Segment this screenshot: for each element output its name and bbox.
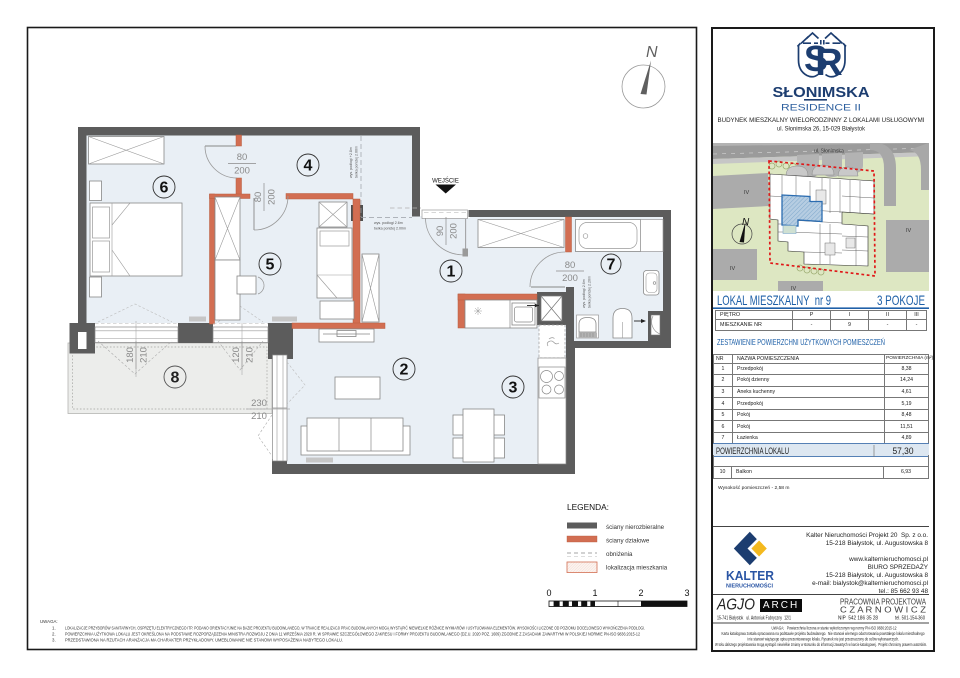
svg-text:200: 200 (234, 166, 250, 177)
svg-text:1: 1 (592, 588, 597, 598)
svg-text:IV: IV (730, 266, 736, 272)
svg-text:belka poniżej 2.00m: belka poniżej 2.00m (374, 227, 406, 231)
svg-text:1.: 1. (52, 626, 56, 631)
svg-text:15-741 Białystok ul. Antoniu: 15-741 Białystok ul. Antoniuk Fabryczny … (717, 616, 791, 622)
svg-text:IV: IV (744, 190, 750, 196)
svg-text:80: 80 (237, 152, 248, 163)
svg-text:obniżenia: obniżenia (606, 551, 633, 558)
svg-text:wys. podłogi 2.6m: wys. podłogi 2.6m (582, 279, 586, 308)
svg-text:6: 6 (160, 180, 169, 197)
svg-text:7: 7 (607, 257, 616, 274)
svg-text:2: 2 (638, 588, 643, 598)
svg-text:3: 3 (684, 588, 689, 598)
svg-text:WEJŚCIE: WEJŚCIE (432, 177, 459, 185)
svg-text:wys. podłogi 2.6m: wys. podłogi 2.6m (374, 221, 403, 225)
svg-text:3: 3 (509, 380, 518, 397)
svg-text:SŁONIMSKA: SŁONIMSKA (773, 84, 870, 101)
svg-text:IV: IV (906, 228, 912, 234)
svg-text:i nie stanowi wiążącego opisu: i nie stanowi wiążącego opisu prezentowa… (747, 637, 899, 642)
svg-text:2.: 2. (52, 632, 56, 637)
svg-text:wys. podłogi +2.8m: wys. podłogi +2.8m (349, 147, 353, 178)
svg-text:200: 200 (449, 223, 460, 239)
svg-text:LEGENDA:: LEGENDA: (567, 502, 609, 512)
svg-text:C Z A R N O W I C Z: C Z A R N O W I C Z (840, 606, 926, 615)
svg-text:4: 4 (304, 158, 313, 175)
svg-text:N: N (742, 217, 750, 228)
svg-text:200: 200 (562, 273, 578, 284)
svg-text:210: 210 (251, 411, 267, 422)
svg-text:N: N (646, 44, 658, 61)
svg-text:0: 0 (546, 588, 551, 598)
svg-text:POWIERZCHNIA LOKALU: POWIERZCHNIA LOKALU (716, 446, 789, 457)
svg-text:W toku dalszego projektowania: W toku dalszego projektowania mogą wystą… (715, 642, 927, 647)
svg-text:Karta katalogowa została oprac: Karta katalogowa została opracowana na p… (722, 631, 925, 636)
svg-text:ściany nierozbieralne: ściany nierozbieralne (606, 524, 665, 531)
svg-text:PRZEDSTAWIONA NA RZUTACH ARANŻ: PRZEDSTAWIONA NA RZUTACH ARANŻACJA MA CH… (65, 638, 343, 643)
svg-text:80: 80 (565, 260, 576, 271)
svg-text:belka poniżej 2.20m: belka poniżej 2.20m (588, 276, 592, 308)
svg-text:ściany działowe: ściany działowe (606, 538, 650, 545)
svg-text:5: 5 (266, 257, 275, 274)
svg-text:1: 1 (447, 264, 456, 281)
svg-text:KALTER: KALTER (726, 568, 775, 583)
svg-text:ZESTAWIENIE POWIERZCHNI UŻYTKO: ZESTAWIENIE POWIERZCHNI UŻYTKOWYCH POMIE… (717, 337, 885, 347)
svg-text:lokalizacja mieszkania: lokalizacja mieszkania (606, 565, 668, 572)
svg-text:57,30: 57,30 (893, 446, 914, 457)
svg-text:120: 120 (231, 347, 242, 363)
svg-text:BUDYNEK MIESZKALNY WIELORODZIN: BUDYNEK MIESZKALNY WIELORODZINNY Z LOKAL… (718, 117, 925, 124)
svg-text:NIP 542 186 35 28: NIP 542 186 35 28 (838, 616, 878, 622)
svg-text:200: 200 (267, 189, 278, 205)
svg-text:LOKAL MIESZKALNY nr 9: LOKAL MIESZKALNY nr 9 (717, 293, 831, 308)
svg-text:NIERUCHOMOŚCI: NIERUCHOMOŚCI (726, 583, 773, 590)
svg-text:210: 210 (245, 347, 256, 363)
svg-text:POWIERZCHNIA UŻYTKOWA LOKALU J: POWIERZCHNIA UŻYTKOWA LOKALU JEST OKREŚL… (65, 632, 640, 637)
svg-text:3.: 3. (52, 638, 56, 643)
svg-text:ul. Słonimska 26, 15-029 Biały: ul. Słonimska 26, 15-029 Białystok (777, 126, 866, 133)
svg-text:8: 8 (171, 370, 180, 387)
svg-text:90: 90 (435, 226, 446, 237)
svg-text:RESIDENCE II: RESIDENCE II (781, 103, 861, 113)
svg-text:UWAGA: Powierzchnia liczona: UWAGA: Powierzchnia liczona w stanie wyk… (772, 626, 897, 631)
svg-text:230: 230 (251, 398, 267, 409)
svg-text:UWAGA:: UWAGA: (40, 619, 58, 624)
svg-text:180: 180 (125, 347, 136, 363)
svg-text:80: 80 (253, 192, 264, 203)
svg-text:3 POKOJE: 3 POKOJE (877, 293, 925, 308)
svg-text:210: 210 (139, 347, 150, 363)
svg-text:2: 2 (400, 362, 409, 379)
svg-text:belka poniżej 2.00m: belka poniżej 2.00m (355, 146, 359, 178)
svg-text:tel. 501-154-360: tel. 501-154-360 (895, 616, 925, 622)
svg-text:LOKALIZACJE PRZYBORÓW SANITARN: LOKALIZACJE PRZYBORÓW SANITARNYCH, OSPRZ… (65, 626, 645, 631)
